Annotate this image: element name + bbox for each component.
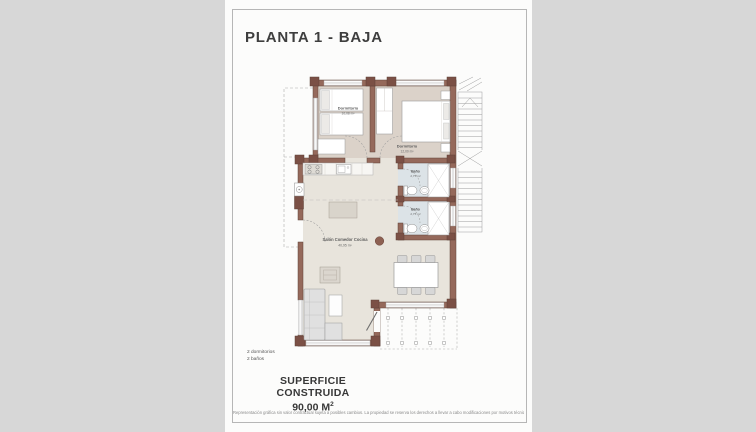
wardrobe-icon <box>377 88 393 134</box>
shower-icon <box>428 164 449 197</box>
salon-area: 40,95 m² <box>338 244 352 248</box>
kitchen-island <box>329 202 357 218</box>
bath2-area: 2,75 m² <box>410 212 420 216</box>
nightstand-icon <box>441 144 450 153</box>
bath1-area: 2,75 m² <box>410 174 420 178</box>
nightstand-icon <box>441 91 450 100</box>
tv-unit-icon <box>320 267 340 283</box>
dining-table-icon <box>394 256 438 295</box>
bath1-name: Baño <box>411 170 420 174</box>
desk-icon <box>318 139 345 154</box>
sink-icon <box>420 187 429 195</box>
toilet-icon <box>404 224 417 233</box>
structural-column <box>375 237 384 246</box>
bath2-name: Baño <box>411 208 420 212</box>
plan-sheet: PLANTA 1 - BAJA <box>225 0 532 432</box>
coffee-table-icon <box>329 295 342 316</box>
summary-dormitorios: 2 dormitorios <box>247 350 275 357</box>
disclaimer-text: Representación gráfica sin valor contrac… <box>233 410 524 415</box>
superficie-label: SUPERFICIE CONSTRUIDA <box>247 375 379 399</box>
bedroom1-area: 10,08 m² <box>341 112 355 116</box>
kitchen-hob-icon <box>305 165 322 175</box>
salon-name: Salón Comedor Cocina <box>322 237 368 242</box>
staircase <box>457 77 483 232</box>
single-bed-icon <box>320 113 363 135</box>
terrace-pergola <box>380 308 457 349</box>
sink-icon <box>420 225 429 233</box>
bedroom1-name: Dormitorio <box>338 106 359 111</box>
water-heater-icon <box>295 183 305 196</box>
shower-icon <box>428 202 449 235</box>
floorplan-svg: Dormitorio 10,08 m² Dormitorio 12,00 m² … <box>270 64 506 364</box>
superficie-block: SUPERFICIE CONSTRUIDA 90,00 M2 <box>247 375 379 414</box>
kitchen-sink-icon <box>337 165 352 175</box>
toilet-icon <box>404 186 417 195</box>
bedroom2-area: 12,00 m² <box>400 150 414 154</box>
bedroom2-name: Dormitorio <box>397 144 418 149</box>
double-bed-icon <box>402 101 450 142</box>
plan-title: PLANTA 1 - BAJA <box>245 29 383 46</box>
canvas: PLANTA 1 - BAJA <box>0 0 756 432</box>
summary-banos: 2 baños <box>247 357 275 364</box>
room-summary: 2 dormitorios 2 baños <box>247 350 275 363</box>
superficie-value-sup: 2 <box>330 401 334 408</box>
